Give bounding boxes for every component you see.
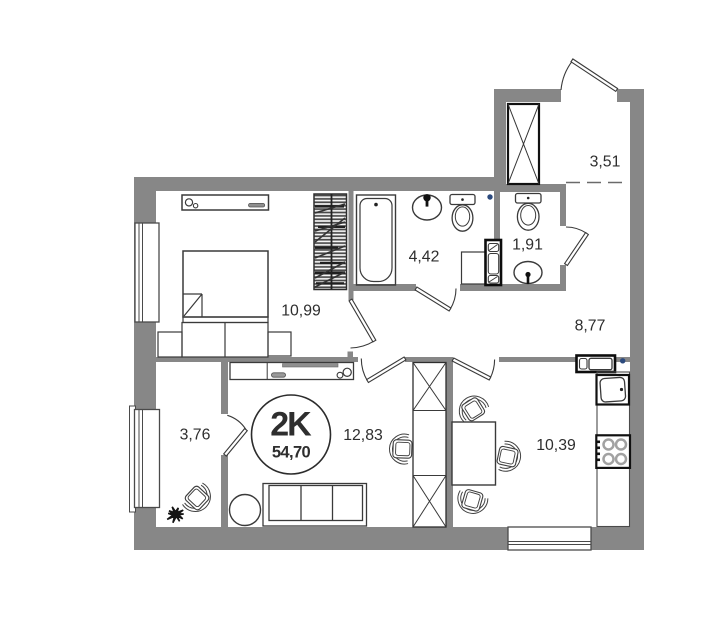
svg-text:4,42: 4,42 (409, 249, 440, 266)
svg-text:2K: 2K (270, 406, 312, 444)
svg-text:12,83: 12,83 (343, 427, 383, 444)
svg-text:54,70: 54,70 (272, 444, 311, 462)
svg-text:8,77: 8,77 (575, 318, 606, 335)
svg-text:3,51: 3,51 (590, 154, 621, 171)
svg-text:10,39: 10,39 (536, 437, 576, 454)
svg-text:10,99: 10,99 (281, 303, 321, 320)
svg-text:1,91: 1,91 (512, 237, 543, 254)
svg-text:3,76: 3,76 (180, 427, 211, 444)
